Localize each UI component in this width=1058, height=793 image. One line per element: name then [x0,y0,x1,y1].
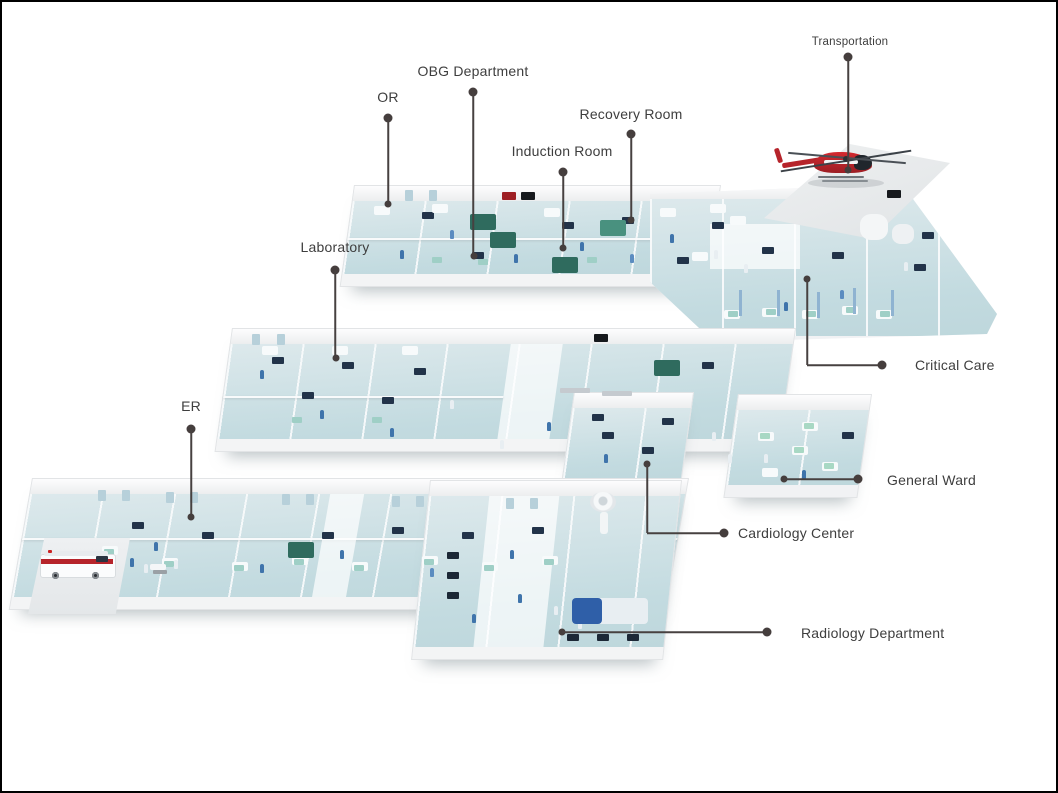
apron [216,439,780,451]
ambulance-window [96,556,108,562]
hospital-map-frame: Transportation OBG Department OR Recover… [0,0,1058,793]
apron [412,647,663,659]
wing-laboratory [215,328,796,452]
callout-or-dot [384,114,393,123]
callout-cardiology-dot [720,529,729,538]
imaging-machine-icon [892,224,914,244]
imaging-machine-icon [860,214,888,240]
floor [562,408,691,483]
callout-transportation-dot [844,53,853,62]
bed-stamps [374,206,390,215]
stretcher-icon [150,564,166,570]
ct-table-icon [600,512,608,534]
floor [726,410,869,485]
callout-radiology-label: Radiology Department [801,625,944,641]
backwall [231,329,795,345]
callout-recovery-dot [627,130,636,139]
callout-critical-care-line-h [807,364,882,366]
ambulance-icon [40,550,116,580]
mid-wall [223,396,503,398]
callout-radiology-dot [763,628,772,637]
surgical-curtain-stamps [470,214,496,230]
callout-transportation-label: Transportation [812,36,889,48]
ambulance-wheel [52,572,59,579]
window-stamps [98,490,106,501]
icu-curtain-stamps [739,290,742,316]
wing-radiology [411,480,682,660]
backwall [429,481,681,497]
blanket-stamps [478,259,488,265]
helicopter-rotor-hub [843,156,849,162]
equipment-stamps [472,252,484,259]
callout-induction-dot [559,168,568,177]
backwall [737,395,871,411]
callout-critical-care-label: Critical Care [915,357,995,373]
waiting-chair-stamps [560,388,590,393]
helicopter-fin [774,148,783,164]
callout-er-label: ER [181,398,201,414]
people-stamps [260,370,264,379]
callout-obg-dot [469,88,478,97]
wall-sign-stamps [502,192,516,200]
callout-general-ward-label: General Ward [887,472,976,488]
ambulance-wheel [92,572,99,579]
callout-laboratory-dot [331,266,340,275]
callout-critical-care-dot [878,361,887,370]
callout-obg-label: OBG Department [418,63,529,79]
callout-cardiology-label: Cardiology Center [738,525,854,541]
callout-induction-label: Induction Room [512,143,613,159]
corridor-patch [710,224,800,269]
backwall [573,393,693,409]
callout-er-dot [187,425,196,434]
hospital-floorplan-scene: Transportation OBG Department OR Recover… [2,2,1056,791]
ambulance-beacon [48,550,52,553]
callout-recovery-label: Recovery Room [580,106,683,122]
callout-or-label: OR [377,89,398,105]
ct-scanner-icon [590,492,616,512]
mri-bore-icon [572,598,602,624]
helicopter-skid [822,180,868,182]
block-general-ward [723,394,872,498]
helicopter-skid [818,176,864,178]
